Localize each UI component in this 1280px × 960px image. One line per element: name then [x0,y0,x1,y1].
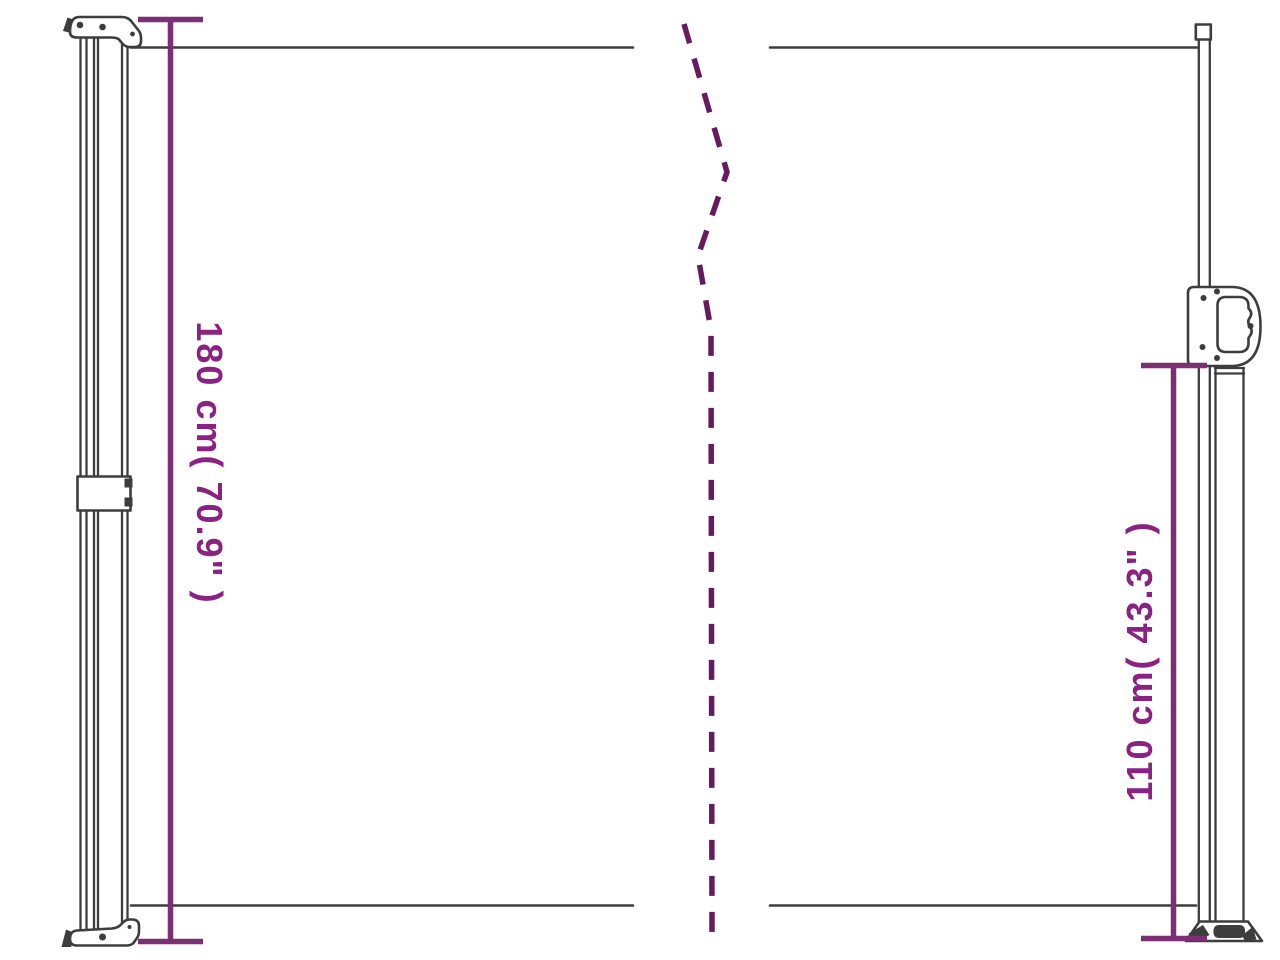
cassette-mid-bracket [78,477,133,511]
screw-icon [99,24,106,31]
awning-fabric-edges [131,48,1197,906]
left-dimension-label: 180 cm( 70.9" ) [189,321,230,604]
screw-icon [128,925,132,929]
left-cassette-post [62,17,142,947]
handle-grip-cutout [1218,297,1252,352]
break-line [684,24,727,934]
cassette-top-cap [63,17,141,47]
screw-icon [1200,344,1206,350]
screw-icon [77,22,84,29]
awning-dimension-diagram: 180 cm( 70.9" ) 110 cm( 43.3" ) [0,0,1280,960]
right-height-dimension: 110 cm( 43.3" ) [1119,365,1207,941]
right-support-pole [1186,25,1262,942]
diagram-canvas: 180 cm( 70.9" ) 110 cm( 43.3" ) [0,0,1280,960]
screw-icon [99,934,106,941]
pole-handle [1188,287,1261,366]
cassette-bottom-cap [62,920,140,948]
screw-icon [1214,355,1220,361]
screw-icon [1248,323,1254,329]
screw-icon [130,32,135,37]
screw-icon [1201,295,1207,301]
pole-top-cap [1196,25,1211,40]
right-dimension-label: 110 cm( 43.3" ) [1119,520,1160,801]
pole-outer-tube [1214,368,1245,926]
left-height-dimension: 180 cm( 70.9" ) [138,20,230,942]
pole-rod [1196,25,1211,925]
screw-icon [1214,289,1220,295]
